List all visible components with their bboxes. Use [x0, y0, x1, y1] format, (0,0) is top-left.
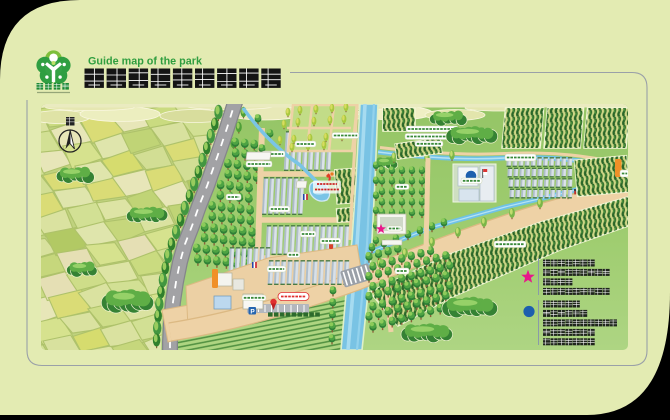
svg-text:P: P: [250, 308, 255, 315]
svg-text:Guide map of the park: Guide map of the park: [88, 56, 203, 68]
